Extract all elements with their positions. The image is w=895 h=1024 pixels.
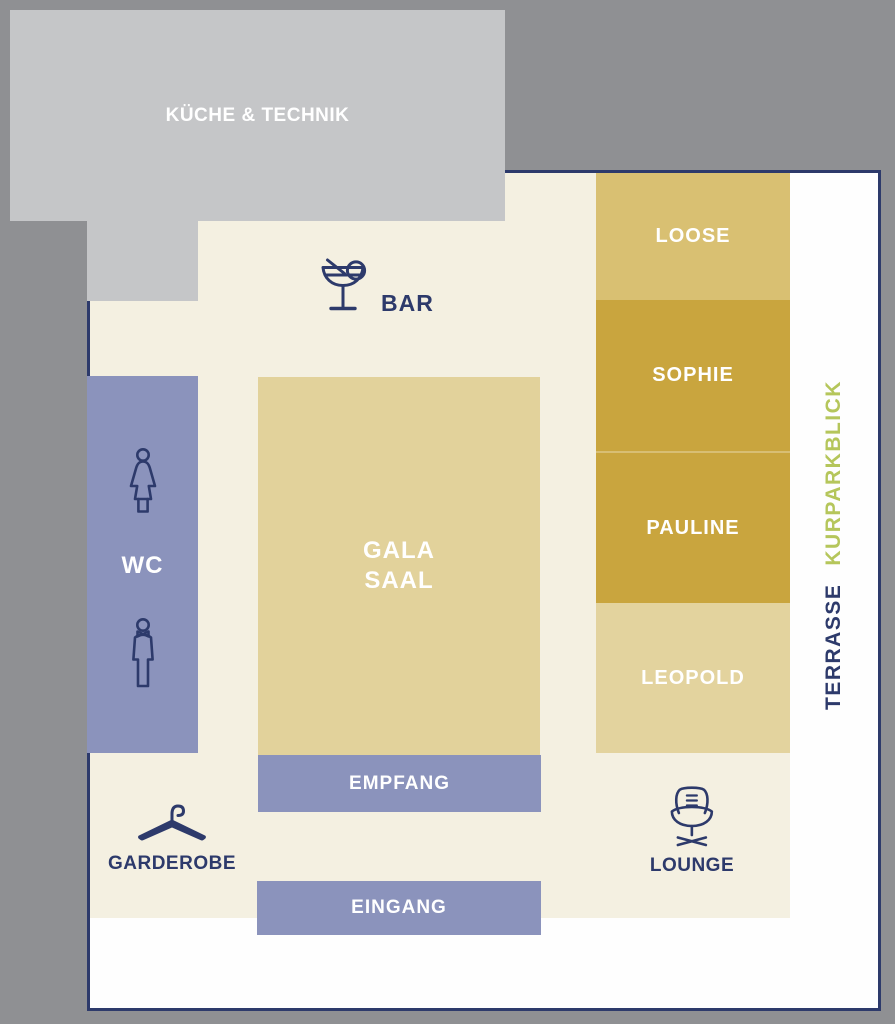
lounge-chair-icon bbox=[665, 784, 719, 848]
room-loose-label: LOOSE bbox=[655, 225, 730, 248]
garderobe-area: GARDEROBE bbox=[108, 796, 236, 875]
bar-area: BAR bbox=[318, 258, 434, 318]
room-kueche-extension bbox=[87, 221, 198, 301]
room-kueche-technik: KÜCHE & TECHNIK bbox=[10, 10, 505, 221]
room-gala-label-line1: GALA bbox=[363, 536, 435, 566]
room-pauline: PAULINE bbox=[596, 451, 790, 603]
terrasse-strip: TERRASSEKURPARKBLICK bbox=[790, 170, 878, 920]
woman-icon bbox=[125, 447, 161, 515]
terrasse-rotated-text: TERRASSEKURPARKBLICK bbox=[822, 380, 846, 710]
cocktail-icon bbox=[318, 258, 370, 318]
room-wc: WC bbox=[87, 376, 198, 753]
room-gala-label-line2: SAAL bbox=[364, 566, 433, 596]
room-eingang: EINGANG bbox=[257, 881, 541, 935]
room-leopold: LEOPOLD bbox=[596, 603, 790, 753]
bar-label: BAR bbox=[381, 290, 434, 318]
room-empfang-label: EMPFANG bbox=[349, 773, 450, 795]
terrasse-label: TERRASSE bbox=[822, 584, 845, 710]
room-leopold-label: LEOPOLD bbox=[641, 667, 745, 690]
coat-hanger-icon bbox=[135, 796, 209, 844]
room-wc-label: WC bbox=[122, 552, 164, 580]
floor-plan: LOOSE SOPHIE PAULINE LEOPOLD GALA SAAL E… bbox=[0, 0, 895, 1024]
room-kueche-label: KÜCHE & TECHNIK bbox=[166, 105, 350, 127]
garderobe-label: GARDEROBE bbox=[108, 853, 236, 875]
lounge-label: LOUNGE bbox=[650, 855, 734, 877]
kurparkblick-label: KURPARKBLICK bbox=[822, 380, 845, 566]
room-eingang-label: EINGANG bbox=[351, 897, 447, 919]
room-loose: LOOSE bbox=[596, 173, 790, 300]
room-gala-saal: GALA SAAL bbox=[258, 377, 540, 755]
room-sophie: SOPHIE bbox=[596, 300, 790, 451]
room-empfang: EMPFANG bbox=[258, 755, 541, 812]
lounge-area: LOUNGE bbox=[650, 784, 734, 877]
room-sophie-label: SOPHIE bbox=[652, 364, 734, 387]
man-icon bbox=[126, 617, 160, 689]
room-pauline-label: PAULINE bbox=[646, 517, 739, 540]
